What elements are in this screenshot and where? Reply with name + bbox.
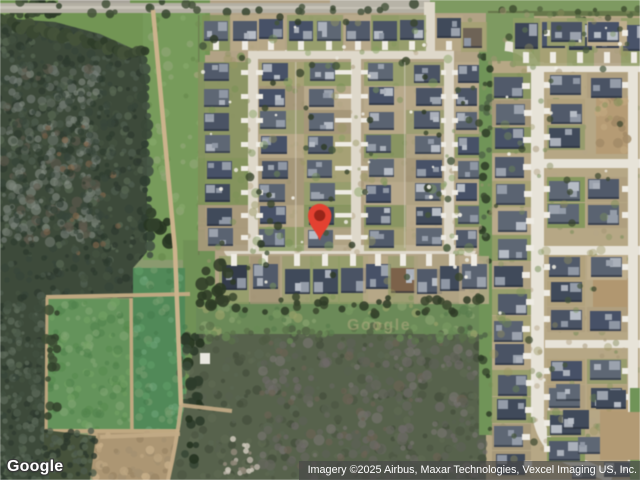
svg-text:Google: Google [347,317,411,334]
